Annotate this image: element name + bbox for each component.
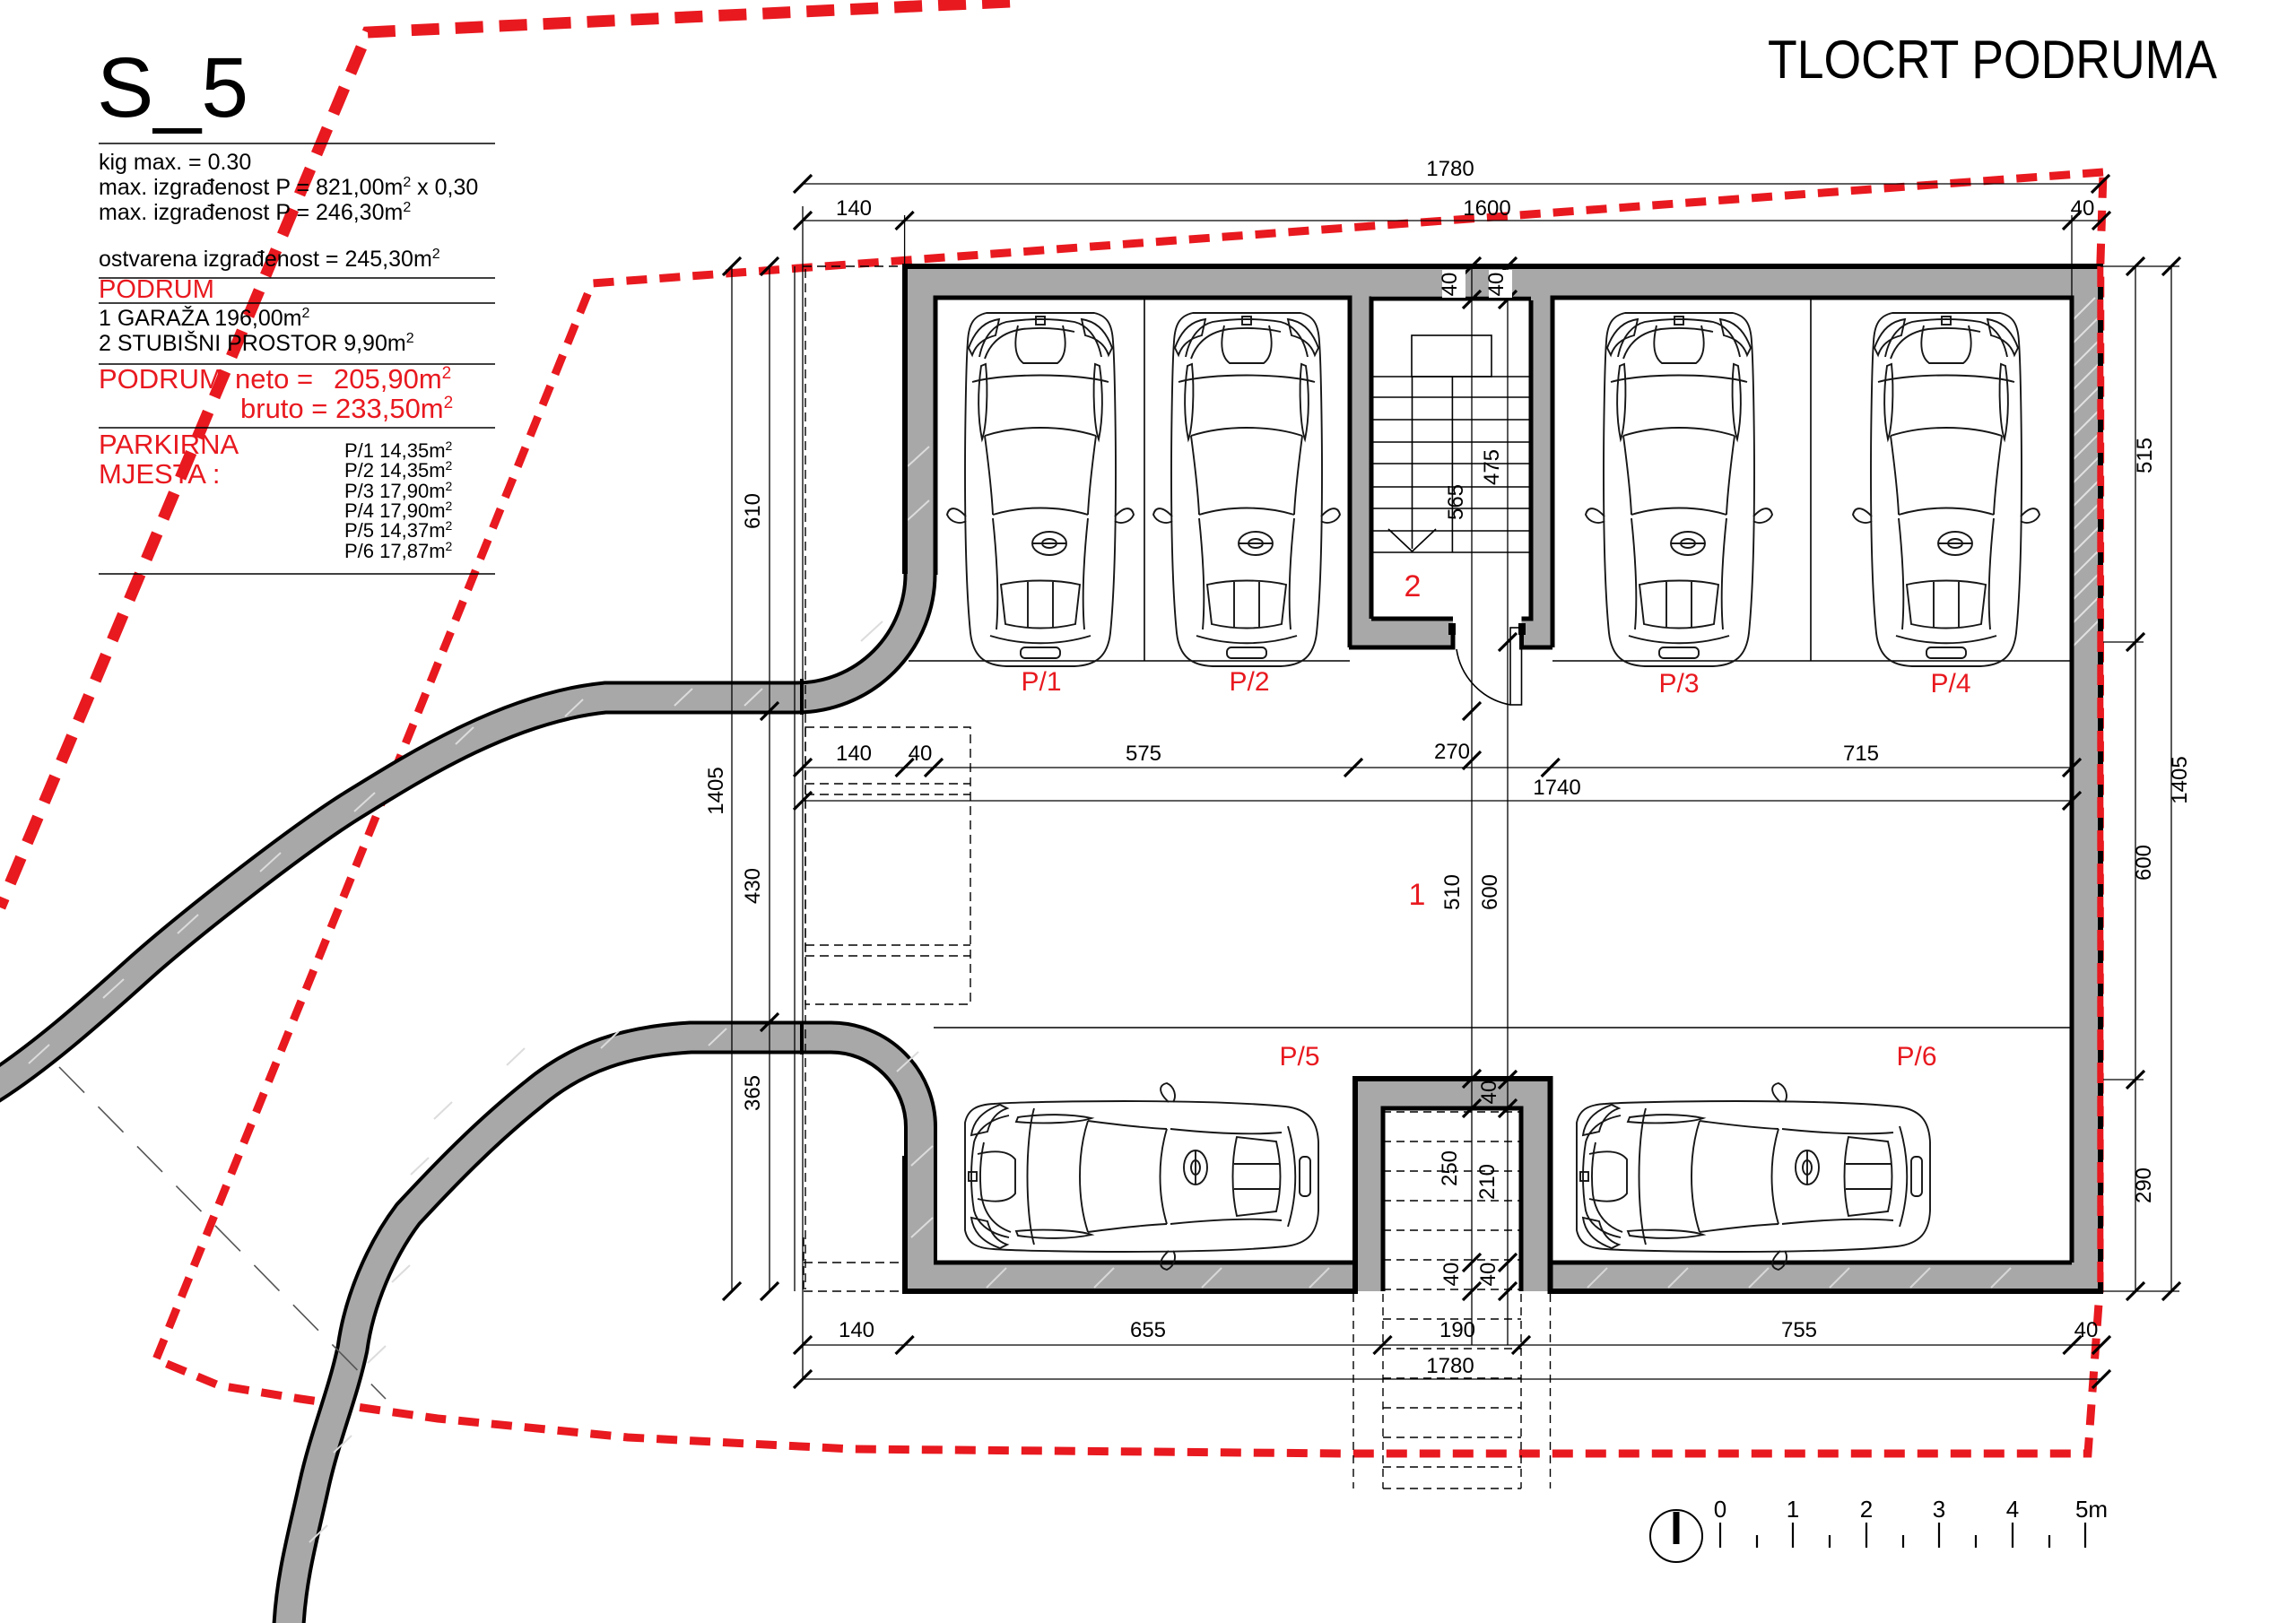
svg-text:755: 755 bbox=[1781, 1318, 1817, 1342]
svg-text:140: 140 bbox=[836, 196, 872, 221]
svg-text:1405: 1405 bbox=[2168, 756, 2192, 803]
svg-text:1: 1 bbox=[1409, 878, 1426, 912]
svg-text:510: 510 bbox=[1440, 874, 1465, 910]
svg-text:40: 40 bbox=[1439, 1263, 1464, 1287]
svg-text:40: 40 bbox=[1484, 273, 1509, 297]
svg-text:bruto = 233,50m2: bruto = 233,50m2 bbox=[240, 393, 453, 424]
svg-text:40: 40 bbox=[2071, 196, 2095, 221]
svg-text:3: 3 bbox=[1933, 1496, 1945, 1523]
svg-text:4: 4 bbox=[2006, 1496, 2019, 1523]
svg-text:1780: 1780 bbox=[1426, 157, 1474, 181]
svg-text:max. izgrađenost P = 821,00m2: max. izgrađenost P = 821,00m2 x 0,30 bbox=[99, 175, 478, 200]
svg-text:715: 715 bbox=[1843, 742, 1879, 766]
svg-text:575: 575 bbox=[1126, 742, 1161, 766]
svg-text:140: 140 bbox=[839, 1318, 874, 1342]
svg-text:1: 1 bbox=[1787, 1496, 1799, 1523]
svg-text:40: 40 bbox=[1476, 1263, 1500, 1287]
svg-text:P/5 14,37m2: P/5 14,37m2 bbox=[344, 518, 453, 542]
svg-text:290: 290 bbox=[2132, 1167, 2156, 1203]
svg-text:140: 140 bbox=[836, 742, 872, 766]
svg-text:1600: 1600 bbox=[1463, 196, 1510, 221]
svg-text:190: 190 bbox=[1439, 1318, 1475, 1342]
svg-text:P/1: P/1 bbox=[1021, 667, 1061, 697]
svg-text:P/6: P/6 bbox=[1896, 1042, 1936, 1072]
svg-text:P/2: P/2 bbox=[1229, 667, 1269, 697]
svg-text:40: 40 bbox=[2074, 1318, 2099, 1342]
svg-text:PODRUM: PODRUM bbox=[99, 275, 214, 304]
svg-text:2: 2 bbox=[1860, 1496, 1873, 1523]
svg-text:600: 600 bbox=[2132, 845, 2156, 881]
svg-text:1740: 1740 bbox=[1533, 776, 1580, 800]
svg-text:P/6 17,87m2: P/6 17,87m2 bbox=[344, 539, 453, 562]
svg-text:610: 610 bbox=[741, 493, 765, 529]
svg-text:270: 270 bbox=[1434, 740, 1470, 764]
svg-text:max. izgrađenost P = 246,30m2: max. izgrađenost P = 246,30m2 bbox=[99, 200, 411, 225]
svg-text:515: 515 bbox=[2133, 438, 2157, 473]
svg-text:1 GARAŽA 196,00m2: 1 GARAŽA 196,00m2 bbox=[99, 305, 310, 331]
svg-text:250: 250 bbox=[1438, 1150, 1462, 1186]
svg-text:P/4: P/4 bbox=[1930, 669, 1970, 699]
svg-text:40: 40 bbox=[909, 742, 933, 766]
svg-text:neto =: neto = bbox=[235, 363, 313, 395]
svg-text:2: 2 bbox=[1405, 569, 1422, 603]
svg-text:ostvarena izgrađenost = 245,30: ostvarena izgrađenost = 245,30m2 bbox=[99, 247, 440, 272]
svg-text:PODRUM: PODRUM bbox=[99, 363, 222, 395]
svg-text:600: 600 bbox=[1478, 874, 1502, 910]
svg-text:40: 40 bbox=[1477, 1081, 1501, 1105]
svg-text:365: 365 bbox=[741, 1075, 765, 1111]
svg-text:P/5: P/5 bbox=[1279, 1042, 1319, 1072]
svg-text:kig max. = 0.30: kig max. = 0.30 bbox=[99, 150, 251, 175]
svg-text:PARKIRNA: PARKIRNA bbox=[99, 429, 239, 460]
svg-text:430: 430 bbox=[741, 868, 765, 904]
svg-text:5m: 5m bbox=[2075, 1496, 2108, 1523]
svg-text:S_5: S_5 bbox=[97, 40, 248, 135]
svg-text:2 STUBIŠNI PROSTOR 9,90m2: 2 STUBIŠNI PROSTOR 9,90m2 bbox=[99, 330, 414, 356]
svg-text:655: 655 bbox=[1130, 1318, 1166, 1342]
svg-text:475: 475 bbox=[1480, 449, 1504, 485]
svg-text:565: 565 bbox=[1444, 484, 1468, 520]
svg-text:210: 210 bbox=[1475, 1164, 1500, 1200]
svg-text:P/2 14,35m2: P/2 14,35m2 bbox=[344, 458, 453, 482]
svg-text:TLOCRT PODRUMA: TLOCRT PODRUMA bbox=[1768, 30, 2217, 90]
svg-text:P/3: P/3 bbox=[1658, 669, 1699, 699]
svg-text:1780: 1780 bbox=[1426, 1354, 1474, 1378]
svg-text:1405: 1405 bbox=[704, 767, 728, 814]
svg-text:40: 40 bbox=[1438, 273, 1462, 297]
svg-text:0: 0 bbox=[1714, 1496, 1726, 1523]
svg-text:205,90m2: 205,90m2 bbox=[334, 363, 451, 395]
svg-text:MJESTA :: MJESTA : bbox=[99, 458, 221, 490]
